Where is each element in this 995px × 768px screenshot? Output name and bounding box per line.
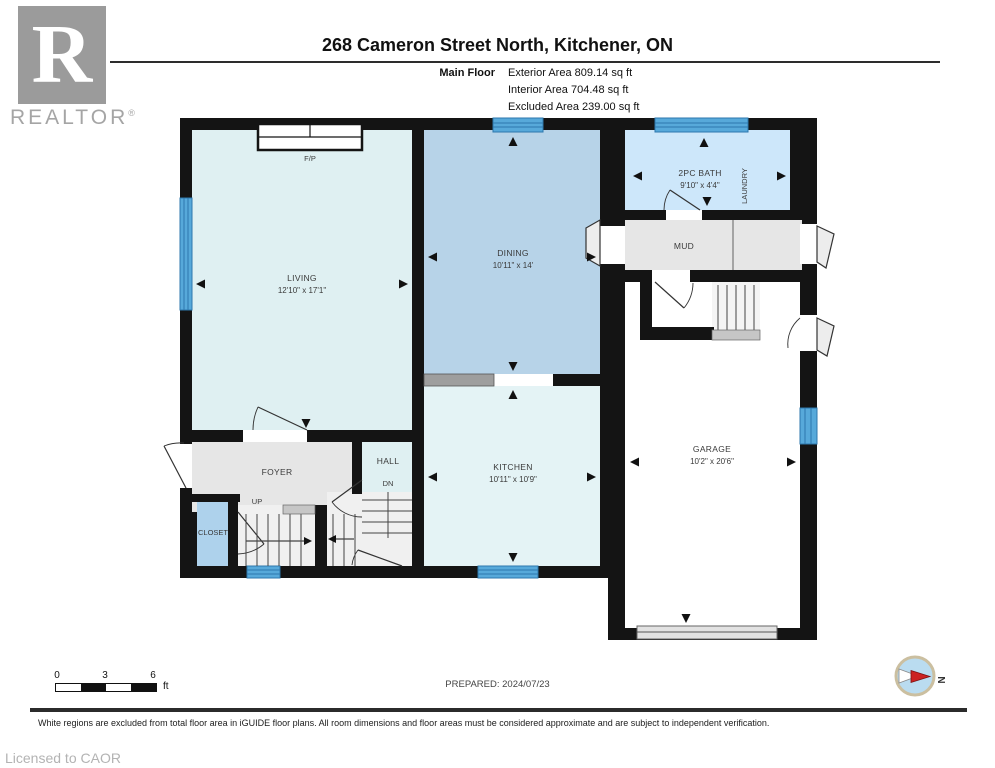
up-label: UP: [252, 497, 262, 506]
floor-plan: LIVING 12'10" x 17'1" DINING 10'11" x 14…: [0, 0, 995, 768]
license-text: Licensed to CAOR: [5, 750, 121, 766]
foyer-label: FOYER: [262, 467, 293, 477]
living-dims: 12'10" x 17'1": [278, 286, 326, 295]
floorplan-page: R REALTOR® 268 Cameron Street North, Kit…: [0, 0, 995, 768]
bath-window: [655, 118, 748, 132]
kitchen-counter: [424, 374, 494, 386]
fp-label: F/P: [304, 154, 316, 163]
dining-window: [493, 118, 543, 132]
bath-dims: 9'10" x 4'4": [680, 181, 720, 190]
garage-dims: 10'2" x 20'6": [690, 457, 734, 466]
kitchen-label: KITCHEN: [493, 462, 532, 472]
compass-north-label: N: [935, 676, 946, 683]
mud-exterior-door: [817, 226, 834, 268]
disclaimer-text: White regions are excluded from total fl…: [38, 718, 938, 728]
stair-window: [247, 566, 280, 578]
stairs-right-floor: [327, 492, 412, 566]
dn-label: DN: [383, 479, 394, 488]
garage-window: [800, 408, 817, 444]
stair-landing: [283, 505, 315, 514]
mud-floor: [625, 220, 802, 270]
kitchen-window: [478, 566, 538, 578]
garage-label: GARAGE: [693, 444, 731, 454]
prepared-date: PREPARED: 2024/07/23: [0, 679, 995, 690]
mud-label: MUD: [674, 241, 694, 251]
kitchen-dims: 10'11" x 10'9": [489, 475, 537, 484]
compass-icon: N: [891, 653, 951, 703]
fireplace: [258, 124, 362, 150]
footer-rule: [30, 708, 967, 712]
closet-label: CLOSET: [198, 528, 228, 537]
dining-label: DINING: [497, 248, 529, 258]
bath-label: 2PC BATH: [678, 168, 721, 178]
hall-label: HALL: [377, 456, 399, 466]
living-label: LIVING: [287, 273, 317, 283]
garage-door: [637, 626, 777, 639]
garage-side-door: [817, 318, 834, 356]
living-window: [180, 198, 192, 310]
garage-stair-tread: [712, 330, 760, 340]
laundry-label: LAUNDRY: [740, 168, 749, 204]
dining-dims: 10'11" x 14': [493, 261, 534, 270]
